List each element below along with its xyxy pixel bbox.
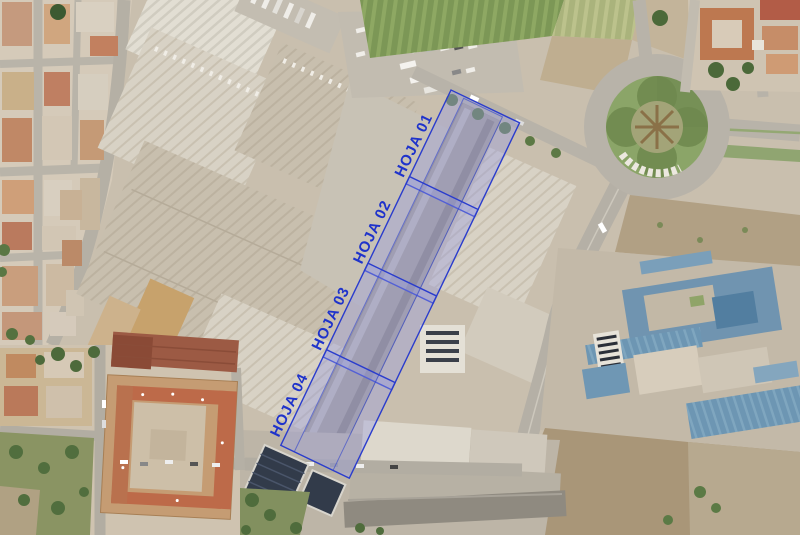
aerial-map-viewport[interactable]: HOJA 01 HOJA 02 HOJA 03 HOJA 04 <box>0 0 800 535</box>
residential-southwest <box>0 332 245 535</box>
apartment-block <box>100 375 237 520</box>
urban-corner-northeast <box>685 0 800 92</box>
aerial-orthophoto: HOJA 01 HOJA 02 HOJA 03 HOJA 04 <box>0 0 800 535</box>
industrial-park-east <box>540 248 800 462</box>
road-north-arm <box>639 0 646 58</box>
